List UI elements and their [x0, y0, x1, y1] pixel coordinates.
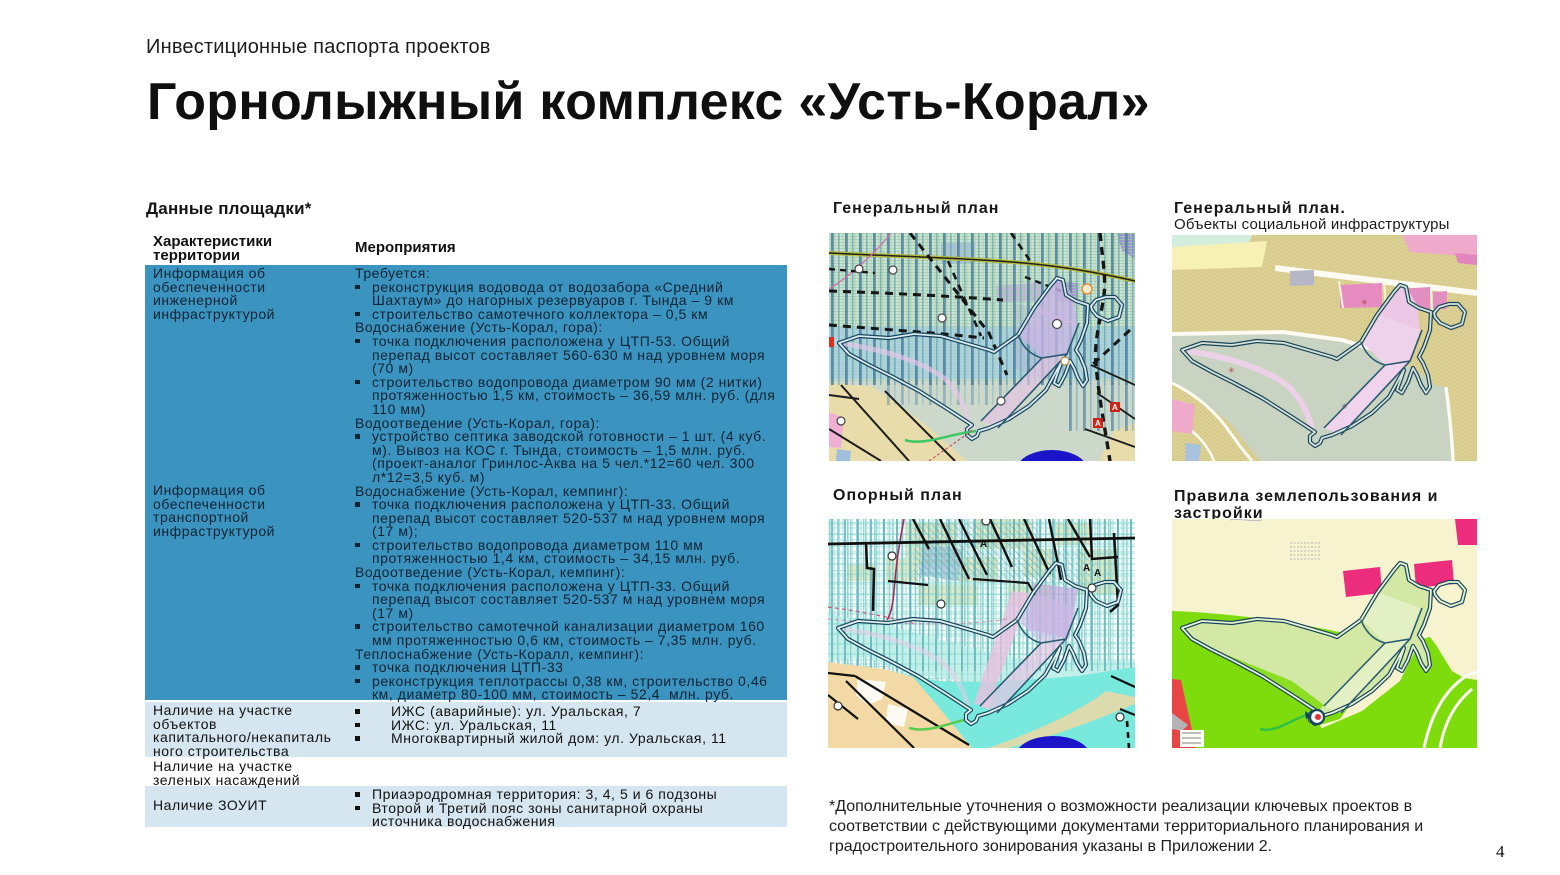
svg-text:А: А: [980, 539, 987, 550]
svg-text:A: A: [1095, 419, 1101, 428]
svg-text:A: A: [1112, 403, 1118, 412]
svg-text:А: А: [1083, 563, 1090, 574]
svg-text:А: А: [1094, 568, 1101, 579]
svg-text:✳: ✳: [1228, 366, 1235, 375]
svg-text:✳: ✳: [1361, 298, 1368, 307]
svg-text:✳: ✳: [1341, 402, 1348, 411]
